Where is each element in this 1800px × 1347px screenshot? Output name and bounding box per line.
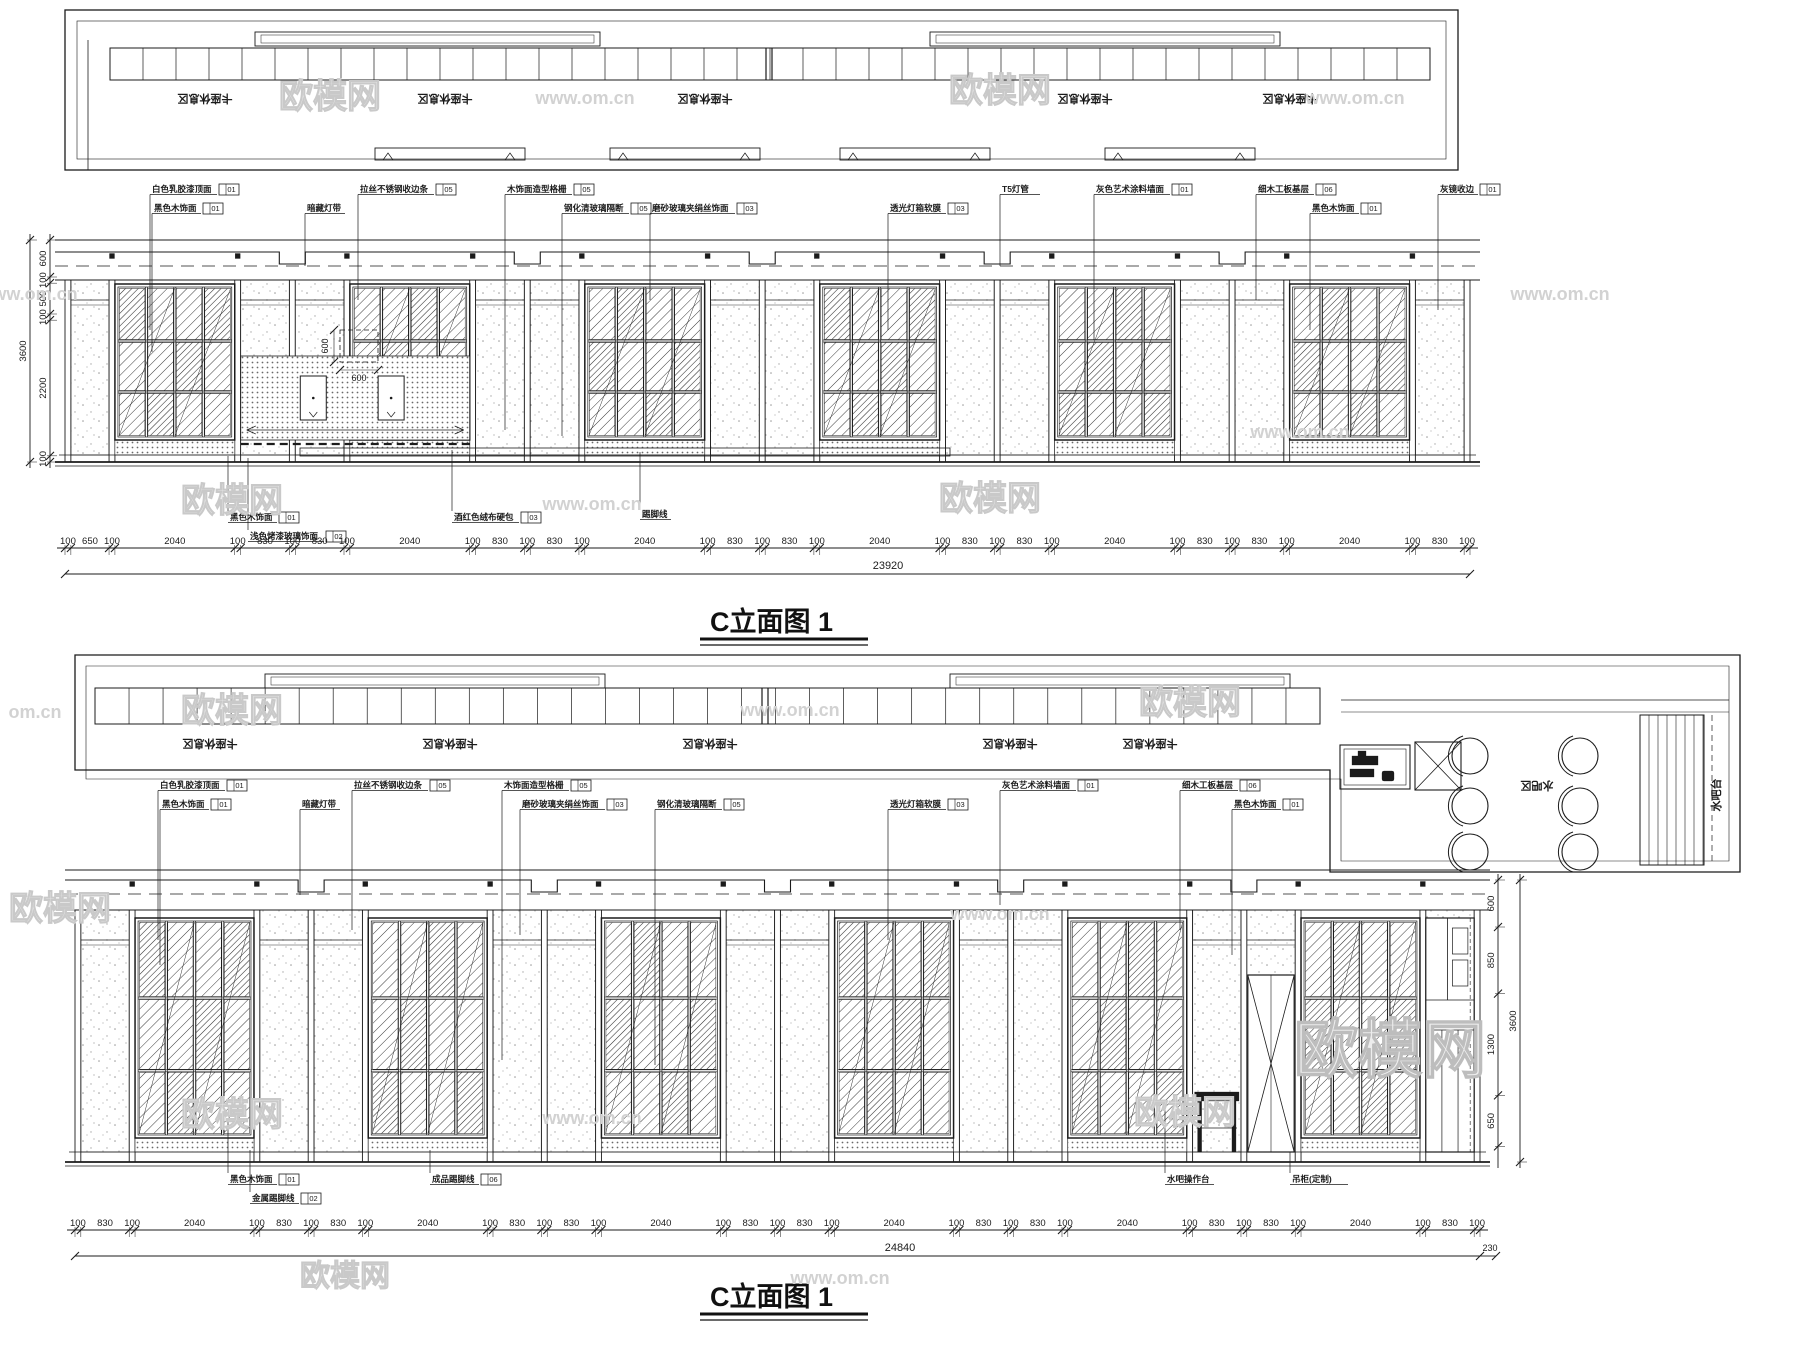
drawing-shape <box>271 677 599 685</box>
callout-code: 01 <box>1086 781 1094 790</box>
drawing-shape <box>589 289 614 340</box>
dim-label: 100 <box>1003 1218 1019 1229</box>
callout-code: 03 <box>529 513 537 522</box>
dim-label: 2040 <box>1350 1218 1371 1229</box>
dim-label: 830 <box>976 1218 992 1229</box>
drawing-shape <box>1558 736 1573 776</box>
dim-label: 100 <box>1415 1218 1431 1229</box>
drawing-shape <box>1382 771 1394 781</box>
callout-text: 踢脚线 <box>642 509 668 519</box>
drawing-shape <box>1059 289 1084 340</box>
drawing-shape <box>1049 254 1054 259</box>
drawing-shape <box>373 923 398 997</box>
drawing-shape <box>1640 715 1704 865</box>
booth-zone-label: 卡座休息区 <box>983 737 1038 751</box>
drawing-shape <box>1088 394 1113 436</box>
drawing-shape <box>135 1138 254 1152</box>
drawing-shape <box>1175 254 1180 259</box>
watermark-url: www.om.cn <box>1249 422 1349 442</box>
callout-text: 灰色艺术涂料墙面 <box>1096 184 1165 194</box>
elevation1-title-block: C立面图 1 <box>700 606 868 645</box>
drawing-shape <box>401 923 426 997</box>
watermark-brand: 欧模网 <box>300 1260 390 1293</box>
dim-label: 100 <box>949 1218 965 1229</box>
drawing-shape <box>1334 923 1359 997</box>
dim-label: 100 <box>574 536 590 547</box>
dim-label: 100 <box>591 1218 607 1229</box>
drawing-shape <box>109 254 114 259</box>
dim-label: 100 <box>519 536 535 547</box>
callout-code: 03 <box>956 800 964 809</box>
drawing-shape <box>1116 343 1141 391</box>
drawing-shape <box>115 440 235 455</box>
watermark-brand: 欧模网 <box>1139 684 1241 722</box>
drawing-shape <box>55 252 1480 264</box>
watermark-brand: 欧模网 <box>279 78 381 116</box>
callout-code: 01 <box>1488 185 1496 194</box>
drawing-shape <box>1306 923 1331 997</box>
dim-label: 850 <box>1486 952 1497 968</box>
drawing-shape <box>824 289 849 340</box>
drawing-shape <box>924 923 949 997</box>
dim-label: 100 <box>809 536 825 547</box>
drawing-shape <box>1294 289 1319 340</box>
callout-code: 01 <box>287 513 295 522</box>
drawing-shape <box>1072 923 1097 997</box>
bar-zone-label: 水吧区 <box>1521 779 1554 793</box>
drawing-shape <box>1420 882 1425 887</box>
drawing-shape <box>205 289 230 340</box>
dim-label: 100 <box>60 536 76 547</box>
callout-text: 黑色木饰面 <box>162 799 205 809</box>
drawing-shape <box>241 356 470 440</box>
drawing-shape <box>1145 289 1170 340</box>
callout-code: 01 <box>211 204 219 213</box>
watermark-url: www.om.cn <box>534 88 634 108</box>
watermark-brand: 欧模网 <box>1134 1094 1236 1132</box>
drawing-shape <box>1301 1138 1420 1152</box>
watermark-url: www.om.cn <box>0 284 78 304</box>
booth-zone-label: 卡座休息区 <box>678 92 733 106</box>
drawing-shape <box>375 148 525 160</box>
dim-label: 100 <box>1405 536 1421 547</box>
drawing-shape <box>924 1072 949 1133</box>
dim-label: 830 <box>547 536 563 547</box>
dim-label: 100 <box>38 309 49 325</box>
drawing-shape <box>1296 882 1301 887</box>
watermark-url: www.om.cn <box>1304 88 1404 108</box>
dim-label: 100 <box>935 536 951 547</box>
dim-label: 100 <box>770 1218 786 1229</box>
drawing-shape <box>853 289 878 340</box>
callout-code: 03 <box>615 800 623 809</box>
callout-text: 木饰面造型格栅 <box>503 780 564 790</box>
drawing-shape <box>675 394 700 436</box>
drawing-shape <box>1187 882 1192 887</box>
dim-label: 100 <box>754 536 770 547</box>
drawing-shape <box>1358 751 1366 756</box>
drawing-shape <box>1344 749 1406 785</box>
callout-text: 暗藏灯带 <box>307 203 342 213</box>
drawing-shape <box>618 394 643 436</box>
drawing-shape <box>634 923 659 997</box>
dim-label: 100 <box>715 1218 731 1229</box>
drawing-shape <box>1380 394 1405 436</box>
dim-label: 100 <box>124 1218 140 1229</box>
drawing-shape <box>1284 254 1289 259</box>
drawing-shape <box>314 910 362 1152</box>
callout-code: 01 <box>287 1175 295 1184</box>
drawing-shape <box>457 1000 482 1070</box>
callout-text: 黑色木饰面 <box>154 203 197 213</box>
dim-label: 650 <box>82 536 98 547</box>
dim-label: 830 <box>1017 536 1033 547</box>
drawing-shape <box>224 923 249 997</box>
drawing-shape <box>814 254 819 259</box>
watermark-url: www.om.cn <box>789 1268 889 1288</box>
dim-label: 3600 <box>18 340 29 361</box>
drawing-shape <box>881 394 906 436</box>
callout-text: 浅色烤漆玻璃饰面 <box>250 531 319 541</box>
drawing-shape <box>205 343 230 391</box>
dim-label: 230 <box>1482 1243 1497 1253</box>
callout-text: 透光灯箱软膜 <box>890 203 942 213</box>
dim-label: 830 <box>1197 536 1213 547</box>
drawing-shape <box>383 289 408 340</box>
drawing-shape <box>390 397 393 400</box>
dim-label: 1300 <box>1486 1034 1497 1055</box>
drawing-shape <box>363 882 368 887</box>
drawing-shape <box>1068 1138 1187 1152</box>
dim-label: 2040 <box>650 1218 671 1229</box>
dim-label: 830 <box>1030 1218 1046 1229</box>
drawing-shape <box>1340 745 1410 789</box>
callout-text: 灰镜收边 <box>1440 184 1475 194</box>
callout-text: 磨砂玻璃夹绢丝饰面 <box>521 799 599 809</box>
drawing-shape <box>1380 343 1405 391</box>
elevation1-title: C立面图 1 <box>710 606 833 637</box>
dim-label: 100 <box>1224 536 1240 547</box>
watermark-brand: 欧模网 <box>181 692 283 730</box>
dim-label: 830 <box>492 536 508 547</box>
drawing-shape <box>596 882 601 887</box>
dim-label: 100 <box>1279 536 1295 547</box>
drawing-shape <box>140 1072 165 1133</box>
dim-label: 100 <box>1057 1218 1073 1229</box>
drawing-shape <box>65 10 1458 170</box>
drawing-shape <box>940 254 945 259</box>
drawing-shape <box>457 923 482 997</box>
watermark-brand: 欧模网 <box>949 72 1051 110</box>
drawing-shape <box>867 923 892 997</box>
dim-label: 2200 <box>38 377 49 398</box>
drawing-shape <box>1294 343 1319 391</box>
drawing-shape <box>726 910 774 1152</box>
drawing-shape <box>646 394 671 436</box>
drawing-shape <box>691 923 716 997</box>
drawing-shape <box>936 35 1274 43</box>
watermark-brand: 欧模网 <box>9 890 111 928</box>
drawing-shape <box>765 280 814 455</box>
dim-label: 830 <box>782 536 798 547</box>
watermark-brand: 欧模网 <box>939 480 1041 518</box>
drawing-shape <box>910 289 935 340</box>
drawing-shape <box>1351 343 1376 391</box>
round-seat <box>1452 788 1488 824</box>
drawing-shape <box>1351 394 1376 436</box>
callout-code: 06 <box>1324 185 1332 194</box>
callout-code: 03 <box>956 204 964 213</box>
drawing-shape <box>1116 394 1141 436</box>
drawing-shape <box>1558 832 1573 872</box>
drawing-shape <box>488 882 493 887</box>
drawing-shape <box>910 394 935 436</box>
booth-zone-label: 卡座休息区 <box>423 737 478 751</box>
dim-label: 2040 <box>634 536 655 547</box>
drawing-shape <box>881 343 906 391</box>
drawing-shape <box>824 394 849 436</box>
drawing-shape <box>429 1072 454 1133</box>
callout-text: 拉丝不锈钢收边条 <box>354 780 423 790</box>
drawing-shape <box>119 394 144 436</box>
dim-label: 830 <box>1263 1218 1279 1229</box>
drawing-shape <box>71 280 109 455</box>
callout-code: 05 <box>444 185 452 194</box>
drawing-shape <box>881 289 906 340</box>
callout-text: 透光灯箱软膜 <box>890 799 942 809</box>
dim-label: 830 <box>509 1218 525 1229</box>
callout-code: 05 <box>579 781 587 790</box>
drawing-shape <box>945 280 994 455</box>
booth-zone-label: 卡座休息区 <box>1058 92 1113 106</box>
drawing-shape <box>81 910 129 1152</box>
drawing-shape <box>1059 343 1084 391</box>
callout-code: 06 <box>489 1175 497 1184</box>
callout-text: 钢化清玻璃隔断 <box>564 203 624 213</box>
dim-label: 600 <box>320 338 330 353</box>
drawing-shape <box>373 1072 398 1133</box>
watermark-url: www.om.cn <box>739 700 839 720</box>
drawing-shape <box>224 1000 249 1070</box>
drawing-shape <box>168 923 193 997</box>
booth-zone-label: 卡座休息区 <box>683 737 738 751</box>
watermark-url: www.om.cn <box>949 904 1049 924</box>
cad-drawing-canvas: 卡座休息区卡座休息区卡座休息区卡座休息区卡座休息区 10065010020401… <box>0 0 1800 1347</box>
drawing-shape <box>1352 756 1378 765</box>
dim-label: 2040 <box>184 1218 205 1229</box>
callout-text: 钢化清玻璃隔断 <box>657 799 717 809</box>
drawing-shape <box>196 1000 221 1070</box>
booth-zone-label: 卡座休息区 <box>183 737 238 751</box>
callout-text: 磨砂玻璃夹绢丝饰面 <box>651 203 729 213</box>
drawing-shape <box>254 882 259 887</box>
callout-text: 木饰面造型格栅 <box>506 184 567 194</box>
drawing-shape <box>119 289 144 340</box>
callout-text: 暗藏灯带 <box>302 799 337 809</box>
drawing-shape <box>646 343 671 391</box>
dim-label: 100 <box>104 536 120 547</box>
callout-code: 06 <box>1248 781 1256 790</box>
dim-label: 100 <box>989 536 1005 547</box>
drawing-shape <box>1350 769 1374 777</box>
drawing-shape <box>1380 289 1405 340</box>
dim-label: 2040 <box>399 536 420 547</box>
drawing-shape <box>265 674 605 688</box>
drawing-shape <box>429 923 454 997</box>
dim-label: 100 <box>1170 536 1186 547</box>
drawing-shape <box>373 1000 398 1070</box>
dim-label: 100 <box>824 1218 840 1229</box>
drawing-shape <box>691 1072 716 1133</box>
drawing-shape <box>853 394 878 436</box>
dim-label: 100 <box>1469 1218 1485 1229</box>
drawing-shape <box>705 254 710 259</box>
callout-text: 成品踢脚线 <box>432 1174 475 1184</box>
callout-code: 05 <box>582 185 590 194</box>
drawing-shape <box>1410 254 1415 259</box>
drawing-shape <box>205 394 230 436</box>
dim-label: 100 <box>1236 1218 1252 1229</box>
drawing-shape <box>148 394 173 436</box>
drawing-shape <box>589 343 614 391</box>
drawing-shape <box>312 397 315 400</box>
drawing-shape <box>610 148 760 160</box>
drawing-shape <box>824 343 849 391</box>
drawing-shape <box>261 35 594 43</box>
drawing-shape <box>1101 923 1126 997</box>
dim-label: 650 <box>1486 1113 1497 1129</box>
plan-strip-top: 卡座休息区卡座休息区卡座休息区卡座休息区卡座休息区 <box>65 10 1458 170</box>
drawing-shape <box>176 394 201 436</box>
drawing-shape <box>959 910 1007 1152</box>
drawing-shape <box>711 280 760 455</box>
drawing-shape <box>176 343 201 391</box>
drawing-shape <box>1290 440 1410 455</box>
dim-label: 100 <box>465 536 481 547</box>
drawing-shape <box>86 666 1729 861</box>
drawing-shape <box>1116 289 1141 340</box>
round-seat <box>1452 834 1488 870</box>
drawing-shape <box>585 440 705 455</box>
drawing-shape <box>1180 280 1229 455</box>
dim-label: 830 <box>727 536 743 547</box>
drawing-shape <box>1055 440 1175 455</box>
callout-text: 拉丝不锈钢收边条 <box>360 184 429 194</box>
dim-label: 2040 <box>1339 536 1360 547</box>
callout-text: 水吧操作台 <box>1166 1174 1210 1184</box>
drawing-shape <box>1072 1072 1097 1133</box>
drawing-shape <box>829 882 834 887</box>
drawing-shape <box>1072 1000 1097 1070</box>
drawing-shape <box>401 1072 426 1133</box>
callout-code: 01 <box>1291 800 1299 809</box>
drawing-shape <box>835 1138 954 1152</box>
watermark-brand: 欧模网 <box>181 1096 283 1134</box>
drawing-shape <box>691 1000 716 1070</box>
drawing-shape <box>1000 280 1049 455</box>
drawing-shape <box>618 289 643 340</box>
drawing-shape <box>662 1072 687 1133</box>
callout-text: 白色乳胶漆顶面 <box>160 780 220 790</box>
dim-label: 830 <box>1432 536 1448 547</box>
dim-label: 100 <box>249 1218 265 1229</box>
drawing-shape <box>1415 280 1464 455</box>
callout-text: 酒红色绒布硬包 <box>454 512 514 522</box>
dim-label: 100 <box>536 1218 552 1229</box>
callout-text: 金属踢脚线 <box>251 1193 295 1203</box>
booth-zone-label: 卡座休息区 <box>178 92 233 106</box>
drawing-shape <box>1558 786 1573 826</box>
dim-label: 830 <box>742 1218 758 1229</box>
drawing-shape <box>675 289 700 340</box>
callout-code: 05 <box>732 800 740 809</box>
dim-total-label: 23920 <box>873 560 904 572</box>
callout-code: 05 <box>639 204 647 213</box>
booth-zone-label: 卡座休息区 <box>1123 737 1178 751</box>
drawing-shape <box>589 394 614 436</box>
drawing-shape <box>457 1072 482 1133</box>
dim-label: 100 <box>70 1218 86 1229</box>
dim-label: 100 <box>1182 1218 1198 1229</box>
drawing-shape <box>255 32 600 46</box>
callout-text: 细木工板基层 <box>1258 184 1310 194</box>
drawing-shape <box>1105 148 1255 160</box>
drawing-shape <box>235 254 240 259</box>
watermark-brand: 欧模网 <box>181 482 283 520</box>
drawing-shape <box>839 923 864 997</box>
drawing-shape <box>65 880 1490 892</box>
drawing-shape <box>1351 289 1376 340</box>
dim-label: 830 <box>276 1218 292 1229</box>
drawing-shape <box>411 289 436 340</box>
callout-code: 02 <box>334 532 342 541</box>
drawing-shape <box>896 1072 921 1133</box>
watermark-url: www.om.cn <box>1509 284 1609 304</box>
drawing-shape <box>662 923 687 997</box>
drawing-shape <box>1088 289 1113 340</box>
dim-label: 100 <box>1044 536 1060 547</box>
drawing-shape <box>344 254 349 259</box>
drawing-shape <box>1157 923 1182 997</box>
watermark-url: www.om.cn <box>541 1108 641 1128</box>
drawing-shape <box>493 910 541 1152</box>
drawing-shape <box>140 923 165 997</box>
callout-code: 01 <box>1369 204 1377 213</box>
drawing-shape <box>840 148 990 160</box>
drawing-shape <box>606 923 631 997</box>
drawing-shape <box>1014 910 1062 1152</box>
booth-zone-label: 卡座休息区 <box>418 92 473 106</box>
drawing-shape <box>196 923 221 997</box>
drawing-shape <box>440 289 465 340</box>
drawing-shape <box>867 1072 892 1133</box>
dim-label: 100 <box>357 1218 373 1229</box>
callout-code: 01 <box>235 781 243 790</box>
dim-label: 830 <box>962 536 978 547</box>
drawing-shape <box>1145 343 1170 391</box>
drawing-shape <box>176 289 201 340</box>
dim-label: 830 <box>797 1218 813 1229</box>
drawing-shape <box>675 343 700 391</box>
drawing-shape <box>1157 1000 1182 1070</box>
dim-label: 830 <box>563 1218 579 1229</box>
drawing-shape <box>1323 289 1348 340</box>
dim-label: 100 <box>38 451 49 467</box>
drawing-shape <box>896 1000 921 1070</box>
dim-label: 2040 <box>884 1218 905 1229</box>
round-seat <box>1562 834 1598 870</box>
dim-label: 3600 <box>1508 1010 1519 1031</box>
